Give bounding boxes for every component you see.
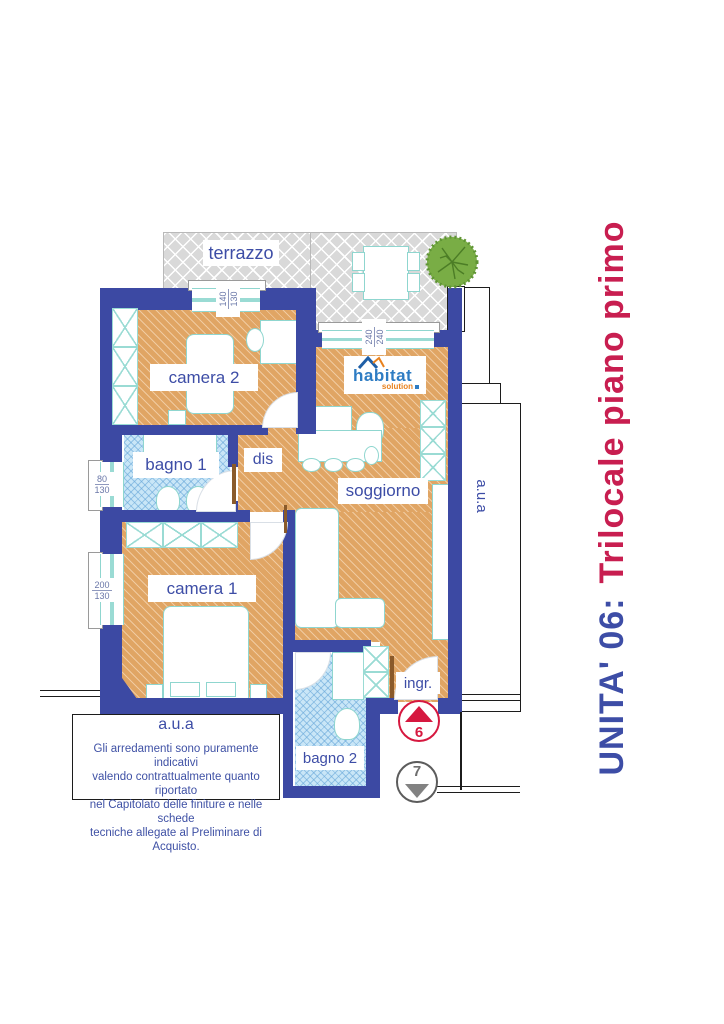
room-label-ingresso: ingr. bbox=[396, 672, 440, 694]
unit-title: UNITA' 06: Trilocale piano primo bbox=[593, 218, 637, 778]
door-leaf bbox=[232, 464, 236, 504]
chair bbox=[364, 446, 379, 465]
room-label-camera2: camera 2 bbox=[150, 364, 258, 391]
habitat-logo: habitat solution bbox=[344, 356, 426, 394]
disclaimer-line: valendo contrattualmente quanto riportat… bbox=[74, 770, 278, 798]
floor-plan-page: terrazzo camera 2 bagno 1 dis soggiorno … bbox=[0, 0, 724, 1024]
wall-segment bbox=[228, 433, 238, 467]
wardrobe bbox=[112, 308, 138, 425]
wardrobe bbox=[363, 646, 389, 698]
boundary-line bbox=[437, 786, 520, 793]
outdoor-table bbox=[363, 246, 409, 300]
dimension-value: 240 bbox=[375, 329, 385, 344]
wall-segment bbox=[100, 425, 268, 435]
area-label-bottom: a.u.a bbox=[72, 716, 280, 734]
nightstand bbox=[168, 410, 186, 425]
chair bbox=[246, 328, 264, 352]
chair bbox=[302, 458, 321, 472]
wall-segment bbox=[296, 288, 316, 434]
nightstand bbox=[146, 684, 163, 699]
dimension-value: 130 bbox=[229, 291, 239, 306]
marker-7: 7 bbox=[396, 761, 438, 803]
room-label-camera1: camera 1 bbox=[148, 575, 256, 602]
window-dimension-camera2: 140 130 bbox=[216, 281, 240, 317]
adjacent-area-step bbox=[461, 383, 501, 405]
dimension-value: 130 bbox=[94, 485, 109, 495]
bathroom-vanity bbox=[332, 652, 364, 700]
room-label-dis: dis bbox=[244, 448, 282, 472]
wall-segment bbox=[132, 698, 283, 714]
pillow bbox=[206, 682, 236, 697]
marker-number: 7 bbox=[398, 763, 436, 780]
dimension-value: 130 bbox=[94, 591, 109, 601]
wall-segment bbox=[378, 698, 398, 714]
chair bbox=[324, 458, 343, 472]
wardrobe-cell bbox=[126, 522, 163, 548]
wardrobe-cell bbox=[363, 672, 389, 698]
room-label-bagno2: bagno 2 bbox=[296, 746, 364, 770]
pillow bbox=[170, 682, 200, 697]
wall-segment bbox=[100, 625, 122, 685]
wardrobe-cell bbox=[112, 308, 138, 347]
room-label-bagno1: bagno 1 bbox=[133, 452, 219, 478]
entrance-number: 6 bbox=[400, 724, 438, 741]
wardrobe-cell bbox=[201, 522, 238, 548]
window-dimension-soggiorno: 240 240 bbox=[362, 319, 386, 355]
wall-segment bbox=[283, 640, 371, 652]
wall-segment bbox=[283, 640, 293, 798]
adjacent-area-strip bbox=[461, 287, 490, 387]
unit-number: UNITA' 06: bbox=[593, 597, 637, 775]
logo-square-icon bbox=[415, 385, 419, 389]
boundary-line bbox=[462, 694, 520, 701]
dimension-value: 240 bbox=[364, 327, 375, 346]
window-dimension-camera1: 200 130 bbox=[89, 578, 115, 602]
arrow-up-icon bbox=[405, 706, 433, 722]
door-leaf bbox=[284, 505, 287, 533]
wall-segment bbox=[448, 288, 462, 712]
sofa bbox=[295, 508, 339, 628]
window-dimension-bagno1: 80 130 bbox=[89, 472, 115, 496]
room-label-soggiorno: soggiorno bbox=[338, 478, 428, 504]
logo-tagline: solution bbox=[382, 382, 419, 391]
wardrobe bbox=[126, 522, 238, 548]
wardrobe-cell bbox=[112, 386, 138, 425]
door-leaf bbox=[390, 656, 394, 698]
nightstand bbox=[250, 684, 267, 699]
adjacent-area-strip bbox=[461, 403, 521, 712]
dimension-value: 200 bbox=[92, 580, 111, 591]
outdoor-chair bbox=[407, 252, 420, 271]
dimension-value: 140 bbox=[218, 289, 229, 308]
wardrobe-cell bbox=[163, 522, 200, 548]
sofa bbox=[335, 598, 385, 628]
outdoor-chair bbox=[407, 273, 420, 292]
boundary-line bbox=[460, 712, 462, 790]
disclaimer-text: Gli arredamenti sono puramente indicativ… bbox=[74, 742, 278, 854]
room-label-terrazzo: terrazzo bbox=[203, 240, 279, 266]
wardrobe-cell bbox=[420, 400, 446, 427]
disclaimer-line: tecniche allegate al Preliminare di Acqu… bbox=[74, 826, 278, 854]
outdoor-chair bbox=[352, 273, 365, 292]
disclaimer-line: nel Capitolato delle finiture e nelle sc… bbox=[74, 798, 278, 826]
toilet bbox=[334, 708, 360, 740]
outdoor-chair bbox=[352, 252, 365, 271]
dimension-value: 80 bbox=[95, 474, 109, 485]
wardrobe-cell bbox=[420, 454, 446, 481]
area-label-right: a.u.a bbox=[472, 466, 492, 526]
wardrobe-cell bbox=[420, 427, 446, 454]
disclaimer-line: Gli arredamenti sono puramente indicativ… bbox=[74, 742, 278, 770]
entrance-marker-6: 6 bbox=[398, 700, 440, 742]
wardrobe-cell bbox=[363, 646, 389, 672]
tree-icon bbox=[422, 232, 482, 292]
wardrobe bbox=[420, 400, 446, 481]
unit-description: Trilocale piano primo bbox=[593, 221, 637, 584]
wardrobe-cell bbox=[112, 347, 138, 386]
chair bbox=[346, 458, 365, 472]
arrow-down-icon bbox=[405, 784, 429, 798]
boundary-line bbox=[40, 690, 102, 697]
logo-tagline-text: solution bbox=[382, 382, 413, 391]
